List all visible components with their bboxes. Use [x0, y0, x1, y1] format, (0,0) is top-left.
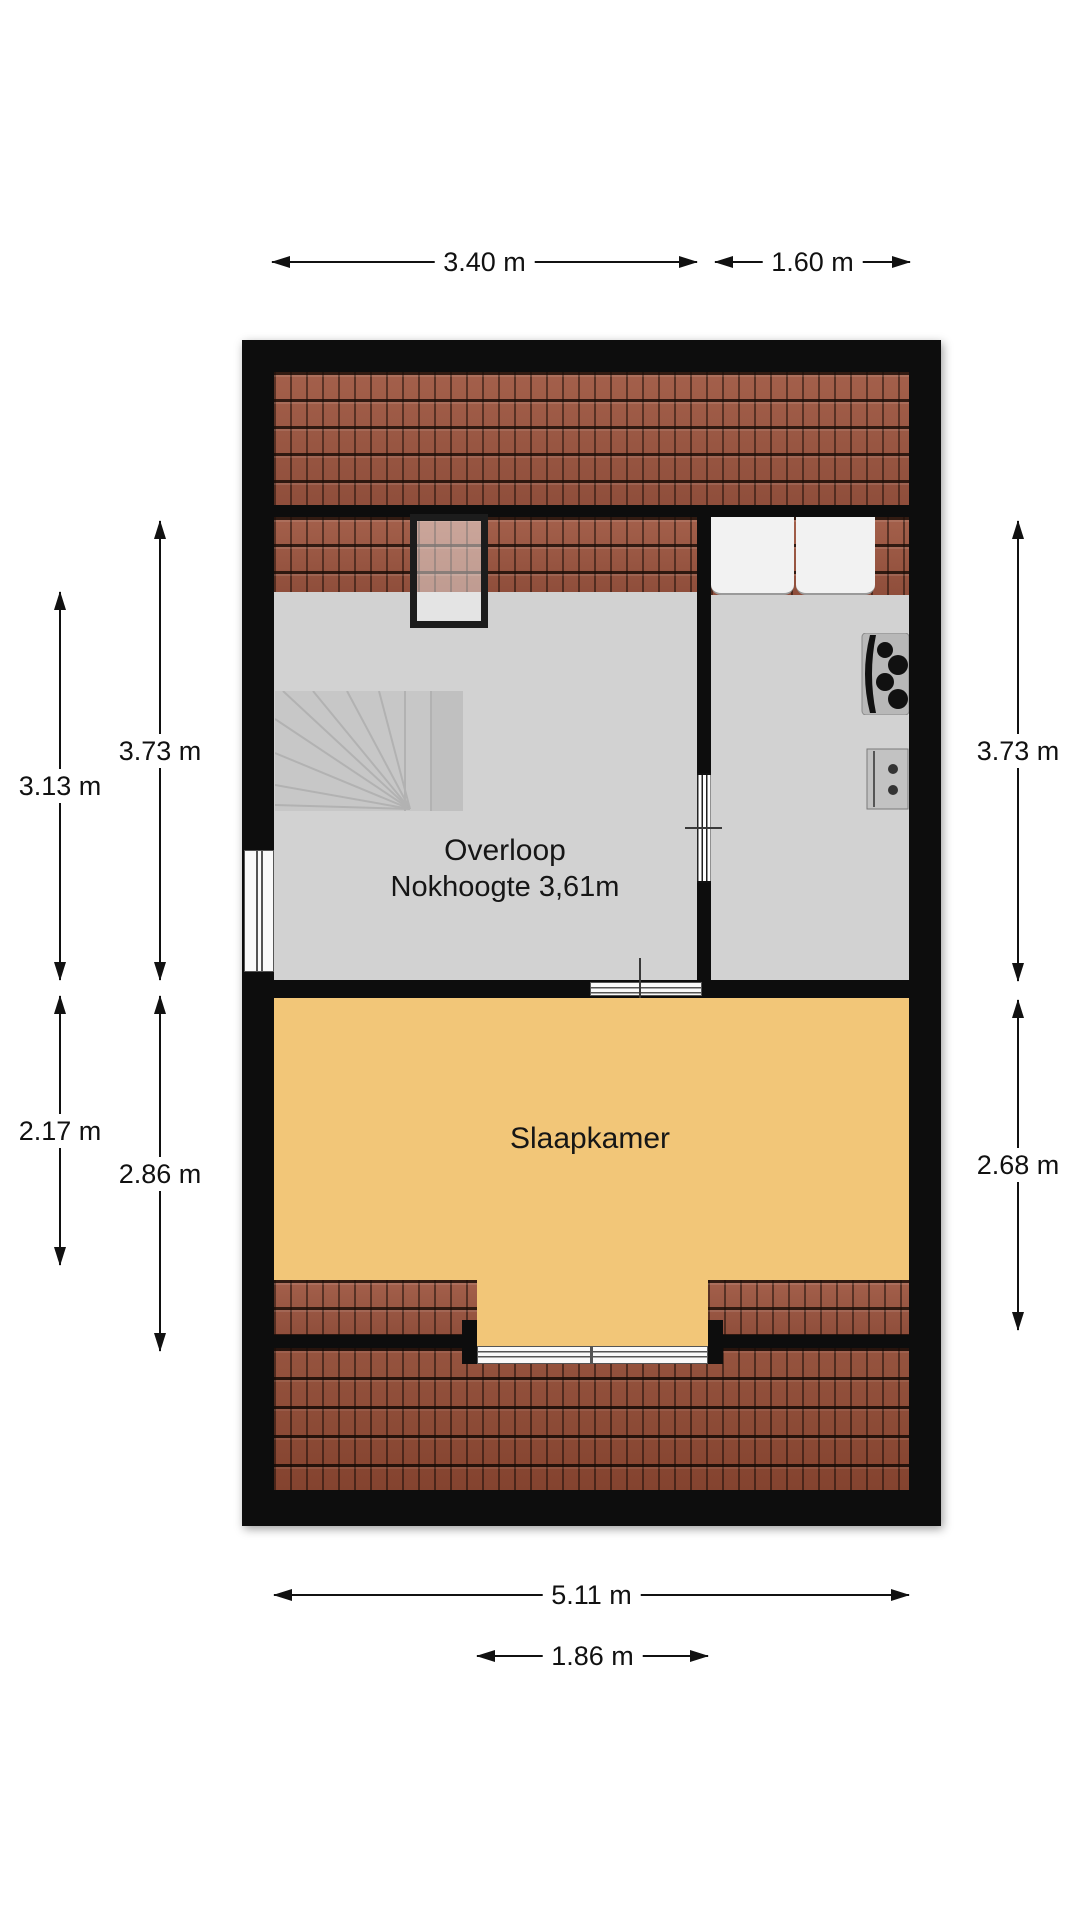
dormer-front-window: [477, 1346, 708, 1364]
dormer-window-pane-left: [711, 517, 794, 595]
overloop-label: Overloop Nokhoogte 3,61m: [345, 832, 665, 905]
wall-under-top-roof: [274, 505, 909, 517]
dim-right-lower: 2.68 m: [1006, 1000, 1030, 1330]
divider-door-tick: [685, 827, 722, 829]
overloop-ridge-height: Nokhoogte 3,61m: [345, 869, 665, 905]
roof-band-top: [274, 372, 909, 505]
dim-left-outer-upper-label: 3.13 m: [10, 769, 111, 803]
dim-top-right: 1.60 m: [715, 250, 910, 274]
knee-wall-left: [274, 1335, 477, 1348]
dim-right-upper-label: 3.73 m: [968, 734, 1069, 768]
dormer-window-mullion: [590, 1347, 593, 1363]
dim-left-outer-lower: 2.17 m: [48, 996, 72, 1265]
dim-left-outer-lower-label: 2.17 m: [10, 1114, 111, 1148]
slaapkamer-name: Slaapkamer: [430, 1120, 750, 1157]
roof-band-bottom: [274, 1348, 909, 1490]
dim-top-left-label: 3.40 m: [434, 245, 535, 279]
left-wall-window: [244, 850, 274, 972]
cooktop: [860, 633, 909, 715]
roof-patch-bottom-right: [708, 1280, 909, 1335]
dim-bottom-total: 5.11 m: [274, 1583, 909, 1607]
dormer-jamb-left: [462, 1320, 477, 1364]
dim-left-inner-lower-label: 2.86 m: [110, 1157, 211, 1191]
dim-left-inner-lower: 2.86 m: [148, 996, 172, 1351]
dim-right-upper: 3.73 m: [1006, 521, 1030, 981]
dim-left-inner-upper: 3.73 m: [148, 521, 172, 980]
dim-top-left: 3.40 m: [272, 250, 697, 274]
dormer-window-pane-right: [796, 517, 875, 595]
knee-wall-right: [708, 1335, 909, 1348]
slaapkamer-dormer-recess: [477, 1280, 708, 1348]
sink: [866, 748, 909, 810]
skylight-window: [410, 514, 488, 628]
dim-bottom-dormer-label: 1.86 m: [542, 1639, 643, 1673]
wall-room-divider: [697, 517, 711, 980]
stairs: [275, 691, 463, 811]
floorplan-page: Overloop Nokhoogte 3,61m Slaapkamer: [0, 0, 1080, 1920]
dim-bottom-dormer: 1.86 m: [477, 1644, 708, 1668]
overloop-name: Overloop: [345, 832, 665, 869]
dim-right-lower-label: 2.68 m: [968, 1148, 1069, 1182]
dormer-jamb-right: [708, 1320, 723, 1364]
slaapkamer-label: Slaapkamer: [430, 1120, 750, 1157]
dim-left-outer-upper: 3.13 m: [48, 592, 72, 980]
dim-top-right-label: 1.60 m: [762, 245, 863, 279]
interior-window-overloop-slaapkamer: [590, 982, 702, 996]
dim-left-inner-upper-label: 3.73 m: [110, 734, 211, 768]
roof-patch-bottom-left: [274, 1280, 477, 1335]
dim-bottom-total-label: 5.11 m: [542, 1578, 641, 1612]
